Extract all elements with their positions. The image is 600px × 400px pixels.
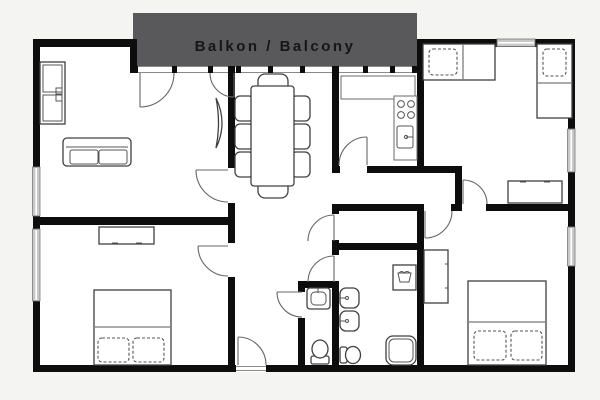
- wall-kitchen-west: [332, 66, 339, 173]
- wardrobe: [424, 250, 448, 303]
- wall-storage-top: [332, 204, 424, 211]
- wall-storage-bath: [339, 243, 417, 250]
- wall-living-bedroom1: [33, 217, 235, 225]
- outer-wall-top-left: [33, 39, 137, 47]
- wc-sink: [307, 288, 330, 309]
- wall-bedroom1-east: [228, 277, 235, 365]
- outer-wall-bottom-left: [33, 365, 236, 372]
- balcony-label: Balkon / Balcony: [195, 38, 356, 55]
- pillow: [429, 49, 457, 75]
- window-bedroom3-right: [568, 227, 576, 266]
- window-bedroom2-right: [568, 129, 576, 172]
- wall-hall-stub2: [332, 240, 339, 255]
- wall-wc-west-lower: [298, 318, 305, 365]
- window-bedroom2-top: [497, 39, 535, 47]
- dining-table: [251, 86, 294, 186]
- pillow: [474, 331, 506, 360]
- floor-plan: Balkon / Balcony: [0, 0, 600, 400]
- wall-stub-balcony-left: [130, 39, 137, 73]
- wall-bedroom2-south-mid: [451, 204, 462, 211]
- balcony-banner: Balkon / Balcony: [133, 13, 417, 72]
- dresser: [99, 227, 154, 244]
- wall-bedroom3-west: [417, 204, 424, 365]
- shower: [386, 336, 416, 365]
- wc-toilet: [311, 340, 329, 364]
- pillow: [98, 338, 129, 362]
- wall-wc-west-upper: [298, 281, 305, 292]
- balcony-window-band: [133, 66, 417, 73]
- double-bed: [94, 290, 171, 365]
- wall-kitchen-south-right: [367, 166, 462, 173]
- pillow: [511, 331, 542, 360]
- pillow: [133, 338, 164, 362]
- wall-kitchen-south-left: [332, 166, 340, 173]
- single-bed-1: [423, 44, 495, 80]
- bathroom-sink: [340, 311, 359, 331]
- window-bedroom1-left: [33, 229, 41, 301]
- wardrobe: [40, 62, 65, 124]
- dresser: [508, 181, 562, 203]
- washing-machine: [393, 265, 416, 290]
- pillow: [543, 49, 566, 76]
- toilet: [340, 347, 361, 364]
- wall-bedroom2-south-right: [486, 204, 575, 211]
- outer-wall-bottom-right: [266, 365, 575, 372]
- bathroom-sink: [340, 288, 359, 308]
- double-bed: [468, 281, 546, 365]
- sofa: [63, 138, 131, 166]
- wall-wc-east: [332, 281, 339, 365]
- window-living-left: [33, 167, 41, 216]
- single-bed-2: [537, 44, 572, 118]
